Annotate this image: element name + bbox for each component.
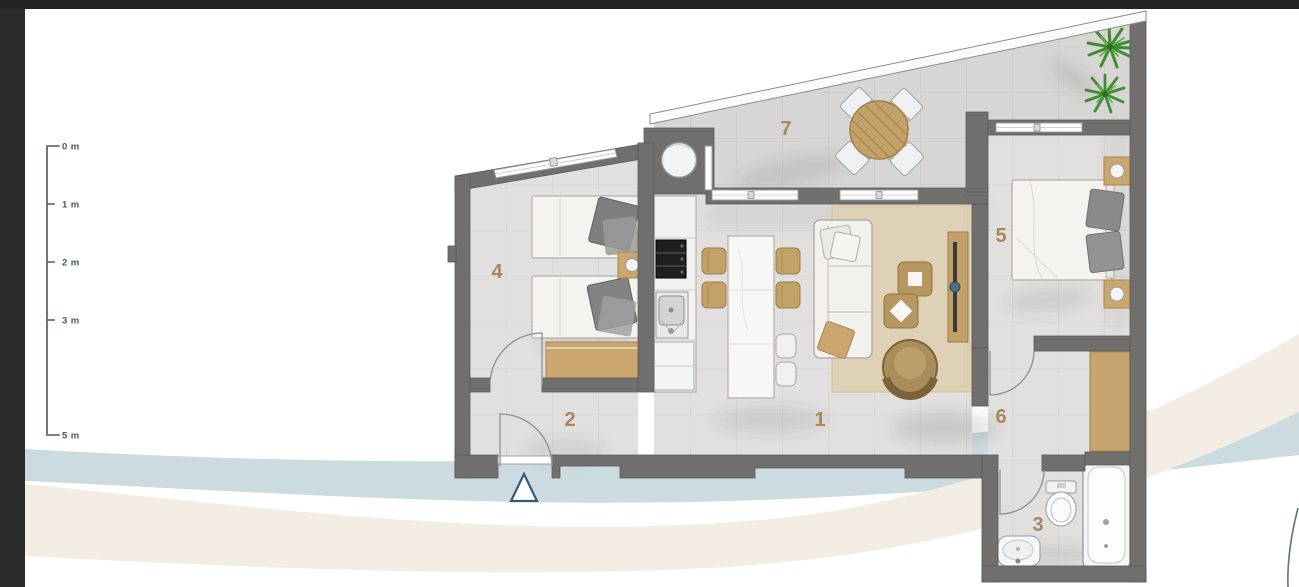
nightstand-bedroom5-top [1104,157,1130,185]
top-bar [0,0,1299,9]
dining-table [850,101,908,159]
bench-bedroom4 [546,342,646,378]
corner-arc [1288,508,1298,587]
twin-bed-bottom [532,276,642,338]
wall-bedroom5-hallway [1034,336,1130,351]
entrance-threshold [498,456,552,464]
room-label-6: 6 [995,406,1006,428]
page: 0 m 1 m 2 m 3 m 5 m [0,0,1299,587]
scale-label-1m: 1 m [62,200,80,211]
wall-right [1130,14,1146,582]
stove [656,240,686,278]
room-label-1: 1 [814,409,825,431]
armchair [883,340,937,396]
scale-label-5m: 5 m [62,431,80,442]
floorplan-canvas: 0 m 1 m 2 m 3 m 5 m [0,0,1299,587]
wall-bottom-left [455,455,498,478]
wall-bathtub-top [1085,452,1130,465]
wall-living-hallway [972,348,988,406]
toilet [1046,481,1076,526]
bathtub [1083,462,1130,568]
wall-bedroom4-hall-right [542,378,638,392]
wall-bathroom-left [982,455,998,582]
tv-unit [948,232,968,342]
wall-bedroom4-hall-left [470,378,490,392]
scale-bar-ruler [47,146,59,435]
sofa [814,220,872,359]
double-bed [1012,180,1124,280]
wall-left [455,176,470,478]
room-label-2: 2 [564,409,575,431]
kitchen-island [728,236,774,398]
room-label-5: 5 [995,225,1006,247]
kitchen-cabinet [654,342,694,390]
wall-bathroom-bottom [982,566,1146,582]
wall-terrace-step [966,112,988,192]
room-label-4: 4 [491,261,503,283]
room-label-7: 7 [780,118,791,140]
twin-bed-top [532,196,642,258]
left-sidebar-strip [0,0,25,587]
room-label-3: 3 [1032,514,1043,536]
kitchen-sink [656,292,688,338]
scale-label-2m: 2 m [62,258,80,269]
scale-label-0m: 0 m [62,142,80,153]
wall-left-notch [448,246,456,262]
scale-label-3m: 3 m [62,316,80,327]
wall-bedroom4-kitchen [638,143,654,392]
washbasin [998,536,1040,566]
nightstand-bedroom5-bottom [1104,280,1130,308]
wardrobe [1090,341,1130,451]
niche-door-frame [705,146,712,190]
wall-living-bedroom5 [972,204,988,348]
scale-bar: 0 m 1 m 2 m 3 m 5 m [47,142,80,442]
wall-bathroom-top [1042,455,1085,471]
